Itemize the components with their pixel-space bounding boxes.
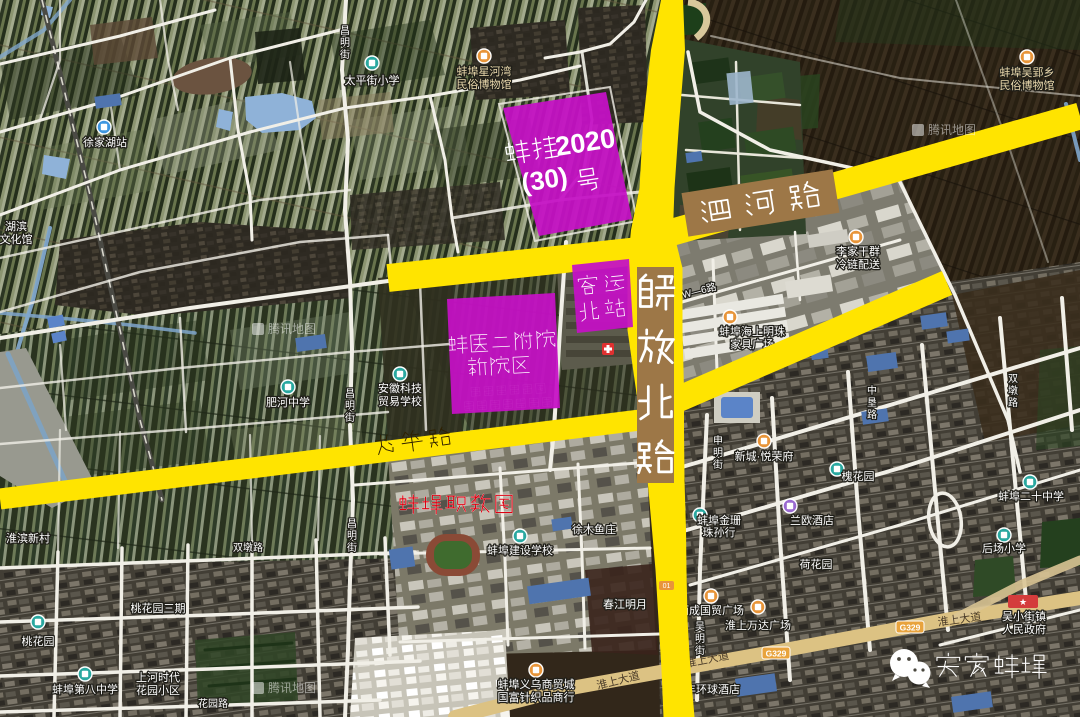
svg-text:双: 双: [1008, 373, 1018, 385]
svg-text:01: 01: [663, 583, 671, 590]
svg-text:太平街小学: 太平街小学: [345, 73, 400, 87]
svg-text:吴小街镇: 吴小街镇: [1002, 609, 1046, 623]
svg-text:明: 明: [695, 633, 705, 645]
svg-text:明: 明: [713, 447, 723, 459]
svg-text:雨成国贸广场: 雨成国贸广场: [678, 603, 744, 617]
svg-text:腾讯地图: 腾讯地图: [268, 680, 316, 695]
svg-text:垦: 垦: [867, 397, 877, 409]
svg-text:中: 中: [867, 384, 877, 397]
svg-text:双墩路: 双墩路: [233, 541, 263, 554]
svg-text:G329: G329: [766, 649, 787, 659]
svg-text:珠孙行: 珠孙行: [703, 525, 736, 539]
svg-text:桃花园: 桃花园: [22, 634, 55, 648]
svg-text:民俗博物馆: 民俗博物馆: [457, 77, 512, 91]
svg-text:路: 路: [867, 408, 877, 421]
svg-text:春江明月: 春江明月: [603, 598, 647, 611]
svg-text:冷链配送: 冷链配送: [836, 257, 880, 271]
svg-text:街: 街: [340, 48, 350, 61]
svg-text:花园路: 花园路: [198, 697, 228, 710]
svg-text:槐花园: 槐花园: [842, 469, 875, 483]
svg-text:蚌埠海上明珠: 蚌埠海上明珠: [719, 324, 785, 338]
svg-text:李家干群: 李家干群: [836, 244, 880, 258]
svg-text:蚌埠二十中学: 蚌埠二十中学: [998, 489, 1064, 503]
svg-text:贸易学校: 贸易学校: [378, 394, 422, 408]
svg-text:荷花园: 荷花园: [800, 558, 833, 571]
svg-text:文化馆: 文化馆: [0, 232, 33, 246]
svg-text:湖滨: 湖滨: [5, 219, 27, 233]
svg-text:街: 街: [347, 541, 357, 554]
svg-text:腾讯地图: 腾讯地图: [928, 122, 976, 137]
svg-text:★: ★: [1019, 597, 1027, 607]
svg-text:街: 街: [345, 411, 355, 424]
svg-text:蚌埠吴郢乡: 蚌埠吴郢乡: [1000, 65, 1055, 79]
svg-text:明: 明: [345, 400, 355, 412]
svg-text:兰欧酒店: 兰欧酒店: [790, 513, 834, 527]
svg-text:蚌埠第八中学: 蚌埠第八中学: [52, 682, 118, 696]
svg-text:申: 申: [713, 434, 723, 447]
svg-text:徐木鱼庄: 徐木鱼庄: [572, 522, 616, 536]
svg-text:桃花园三期: 桃花园三期: [131, 601, 186, 615]
svg-text:蚌埠星河湾: 蚌埠星河湾: [457, 64, 512, 78]
svg-text:蚌埠建设学校: 蚌埠建设学校: [487, 543, 553, 557]
svg-text:昌: 昌: [347, 518, 357, 530]
svg-text:淮上万达广场: 淮上万达广场: [725, 618, 791, 632]
svg-text:G329: G329: [900, 623, 921, 633]
svg-text:徐家湖站: 徐家湖站: [83, 135, 127, 149]
svg-text:上河时代: 上河时代: [136, 671, 180, 684]
svg-text:花园小区: 花园小区: [136, 684, 180, 697]
svg-text:昌: 昌: [345, 388, 355, 400]
svg-text:明: 明: [347, 530, 357, 542]
svg-text:吴: 吴: [695, 621, 705, 633]
svg-text:肥河中学: 肥河中学: [266, 395, 310, 409]
svg-text:人民政府: 人民政府: [1002, 622, 1046, 636]
svg-text:昌: 昌: [340, 25, 350, 37]
svg-text:安徽科技: 安徽科技: [378, 381, 422, 395]
svg-text:国富针织品商行: 国富针织品商行: [498, 690, 575, 704]
svg-text:街: 街: [713, 458, 723, 471]
svg-text:后场小学: 后场小学: [982, 541, 1026, 555]
svg-text:明: 明: [340, 37, 350, 49]
svg-text:路: 路: [1008, 396, 1018, 409]
svg-text:民俗博物馆: 民俗博物馆: [1000, 78, 1055, 92]
svg-text:新城·悦荣府: 新城·悦荣府: [735, 449, 794, 463]
svg-text:蚌埠金珊: 蚌埠金珊: [697, 513, 741, 527]
svg-text:腾讯地图: 腾讯地图: [268, 321, 316, 336]
svg-text:淮滨新村: 淮滨新村: [6, 531, 50, 545]
svg-text:墩: 墩: [1008, 384, 1018, 397]
svg-text:蚌埠义乌商贸城: 蚌埠义乌商贸城: [498, 677, 575, 691]
